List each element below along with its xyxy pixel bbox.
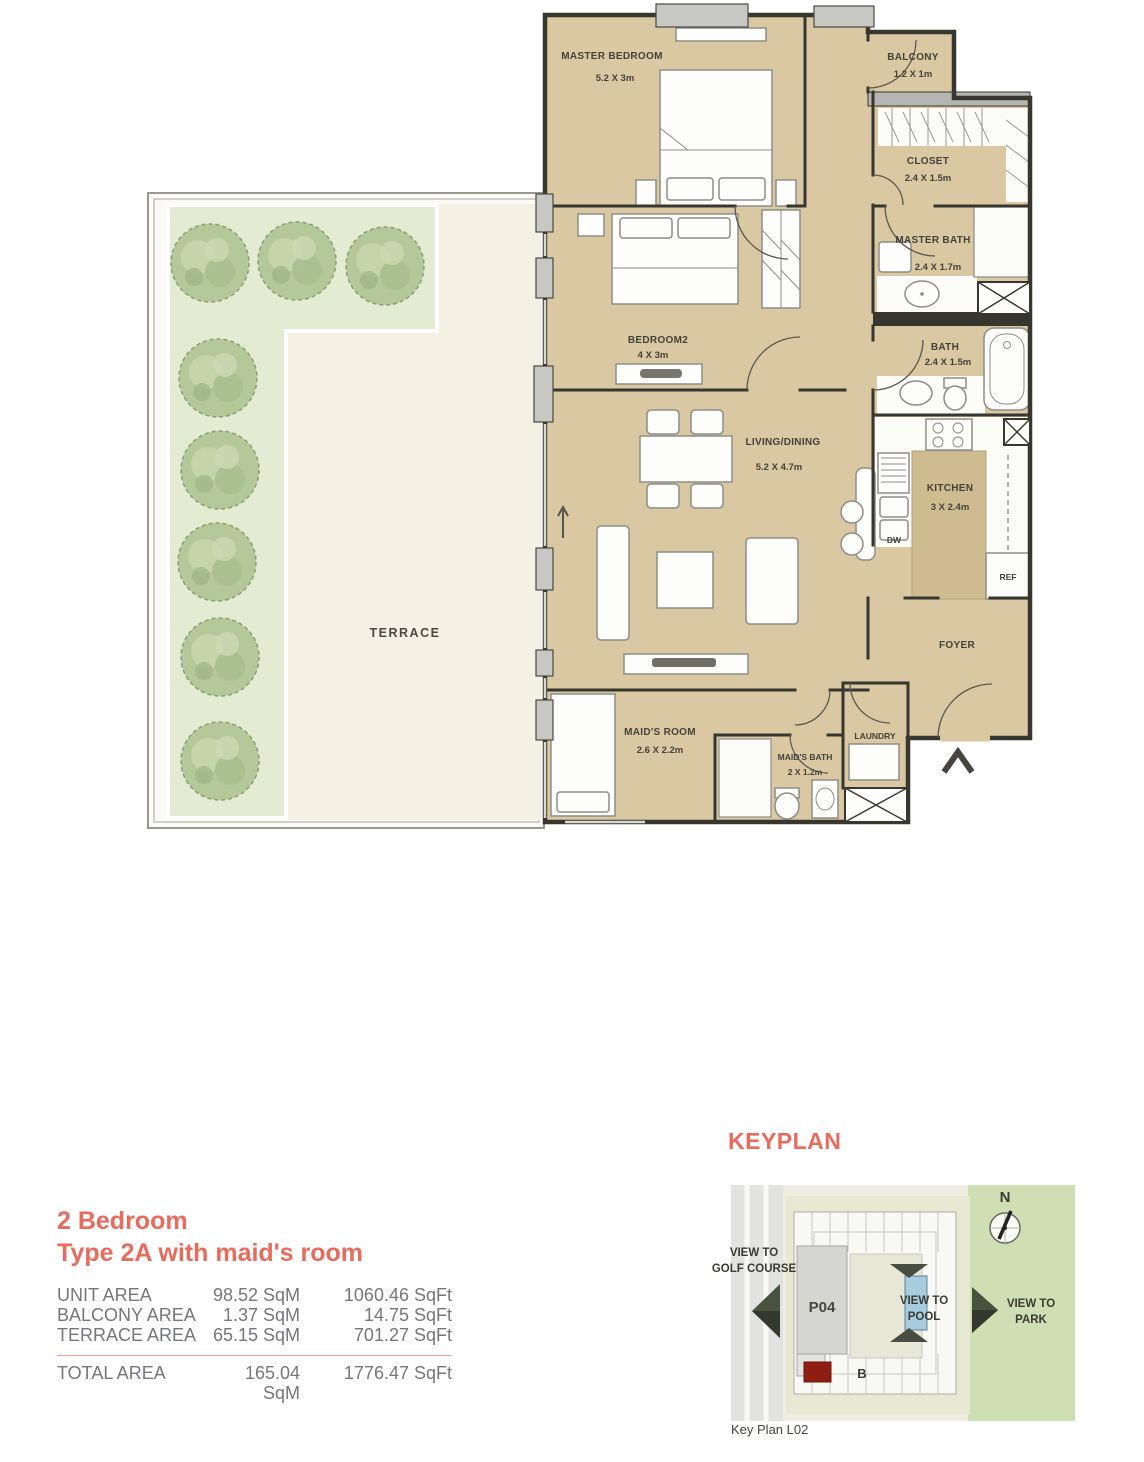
refrigerator-label: REF	[1000, 572, 1017, 582]
shaft	[978, 282, 1030, 314]
bath-label: BATH	[931, 342, 959, 353]
floor-plan: TERRACE	[0, 0, 1144, 880]
window-pillar	[536, 258, 553, 298]
table-row: TERRACE AREA 65.15 SqM 701.27 SqFt	[57, 1325, 452, 1345]
bedroom2-dim: 4 X 3m	[638, 350, 669, 361]
tree-icon	[181, 722, 259, 800]
area-row-sqft: 701.27 SqFt	[300, 1325, 452, 1345]
shaft	[1004, 419, 1030, 445]
toilet	[944, 378, 966, 410]
sofa	[597, 526, 629, 640]
maids-room-dim: 2.6 X 2.2m	[637, 745, 683, 756]
unit-title-line1: 2 Bedroom	[57, 1205, 452, 1237]
sofa	[746, 538, 798, 624]
table-row: BALCONY AREA 1.37 SqM 14.75 SqFt	[57, 1305, 452, 1325]
brochure-page: TERRACE	[0, 0, 1144, 1462]
tree-icon	[179, 339, 257, 417]
area-row-sqft: 14.75 SqFt	[300, 1305, 452, 1325]
maids-bath-dim: 2 X 1.2m	[788, 767, 823, 777]
window-block	[656, 4, 748, 27]
window-block	[814, 6, 874, 27]
closet-dim: 2.4 X 1.5m	[905, 173, 951, 184]
master-bath-label: MASTER BATH	[895, 235, 970, 246]
view-park-label: VIEW TO	[1007, 1298, 1055, 1310]
area-row-sqm: 1.37 SqM	[207, 1305, 300, 1325]
tree-icon	[258, 222, 336, 300]
side-table	[578, 214, 604, 236]
unit-title-line2: Type 2A with maid's room	[57, 1237, 452, 1269]
view-pool-label: VIEW TO	[900, 1295, 948, 1307]
table-row: UNIT AREA 98.52 SqM 1060.46 SqFt	[57, 1285, 452, 1305]
foyer-label: FOYER	[939, 640, 975, 651]
keyplan-map: N P04 B VIEW TO GOLF COURSE VIEW TO POOL…	[690, 1180, 1144, 1452]
bar-stool	[841, 501, 863, 523]
master-bedroom-label: MASTER BEDROOM	[561, 51, 662, 62]
kitchen-dim: 3 X 2.4m	[931, 502, 970, 513]
unit-location-marker	[804, 1362, 831, 1382]
total-sqm: 165.04 SqM	[207, 1363, 300, 1403]
tree-icon	[346, 227, 424, 305]
area-row-label: TERRACE AREA	[57, 1325, 207, 1345]
table-total-row: TOTAL AREA 165.04 SqM 1776.47 SqFt	[57, 1363, 452, 1383]
laundry-label: LAUNDRY	[854, 731, 896, 741]
shaft	[845, 788, 907, 822]
master-shower	[974, 207, 1030, 277]
maids-bath-label: MAID'S BATH	[778, 752, 833, 762]
keyplan-title: KEYPLAN	[728, 1128, 841, 1155]
maids-bed	[551, 694, 615, 816]
master-bedroom-dim: 5.2 X 3m	[596, 73, 635, 84]
dishwasher-label: DW	[887, 535, 902, 545]
area-row-label: UNIT AREA	[57, 1285, 207, 1305]
nightstand	[636, 180, 656, 206]
maids-room-label: MAID'S ROOM	[624, 727, 696, 738]
dresser	[616, 364, 702, 384]
closet-wardrobe	[878, 108, 1006, 146]
view-golf-label: GOLF COURSE	[712, 1263, 797, 1275]
washing-machine	[849, 744, 899, 780]
master-bed	[660, 70, 772, 206]
window-pillar	[536, 700, 553, 740]
bedroom2-bed	[612, 214, 738, 304]
area-row-sqft: 1060.46 SqFt	[300, 1285, 452, 1305]
kitchen-sink	[878, 453, 909, 540]
terrace: TERRACE	[148, 193, 544, 828]
balcony-label: BALCONY	[887, 52, 939, 63]
block-label: B	[857, 1366, 866, 1381]
tree-icon	[171, 224, 249, 302]
tree-icon	[181, 431, 259, 509]
north-label: N	[1000, 1189, 1011, 1206]
nightstand	[776, 180, 796, 206]
total-sqft: 1776.47 SqFt	[300, 1363, 452, 1383]
tree-icon	[181, 618, 259, 696]
kitchen-island	[912, 451, 986, 599]
living-dining-dim: 5.2 X 4.7m	[756, 462, 802, 473]
master-bath-dim: 2.4 X 1.7m	[915, 262, 961, 273]
tree-icon	[178, 523, 256, 601]
total-label: TOTAL AREA	[57, 1363, 207, 1383]
window-ledge	[676, 28, 766, 41]
sink-drain	[920, 292, 924, 296]
keyplan-caption: Key Plan L02	[731, 1422, 808, 1437]
area-row-sqm: 65.15 SqM	[207, 1325, 300, 1345]
kitchen-label: KITCHEN	[927, 483, 974, 494]
unit-details: 2 Bedroom Type 2A with maid's room UNIT …	[57, 1205, 452, 1383]
entrance-arrow-icon	[944, 752, 972, 772]
bathtub	[984, 328, 1030, 410]
maids-shower	[719, 739, 771, 817]
view-park-label: PARK	[1015, 1314, 1047, 1326]
toilet	[775, 788, 799, 819]
sink	[812, 780, 838, 818]
building-label: P04	[809, 1299, 836, 1316]
area-table: UNIT AREA 98.52 SqM 1060.46 SqFt BALCONY…	[57, 1285, 452, 1383]
window-pillar	[534, 366, 553, 422]
table-divider	[57, 1355, 452, 1356]
bedroom2-label: BEDROOM2	[628, 335, 688, 346]
view-pool-label: POOL	[908, 1311, 941, 1323]
stove	[926, 419, 972, 450]
window-pillar	[536, 548, 553, 590]
area-row-sqm: 98.52 SqM	[207, 1285, 300, 1305]
balcony-dim: 1.2 X 1m	[894, 69, 933, 80]
view-golf-label: VIEW TO	[730, 1247, 778, 1259]
ottoman	[657, 552, 713, 608]
living-dining-label: LIVING/DINING	[745, 437, 820, 448]
sink	[900, 381, 932, 405]
bath-dim: 2.4 X 1.5m	[925, 357, 971, 368]
window-pillar	[536, 194, 553, 232]
tv-console	[624, 654, 748, 674]
closet-label: CLOSET	[907, 156, 949, 167]
area-row-label: BALCONY AREA	[57, 1305, 207, 1325]
bar-stool	[841, 533, 863, 555]
terrace-label: TERRACE	[370, 626, 441, 640]
window-pillar	[536, 650, 553, 676]
